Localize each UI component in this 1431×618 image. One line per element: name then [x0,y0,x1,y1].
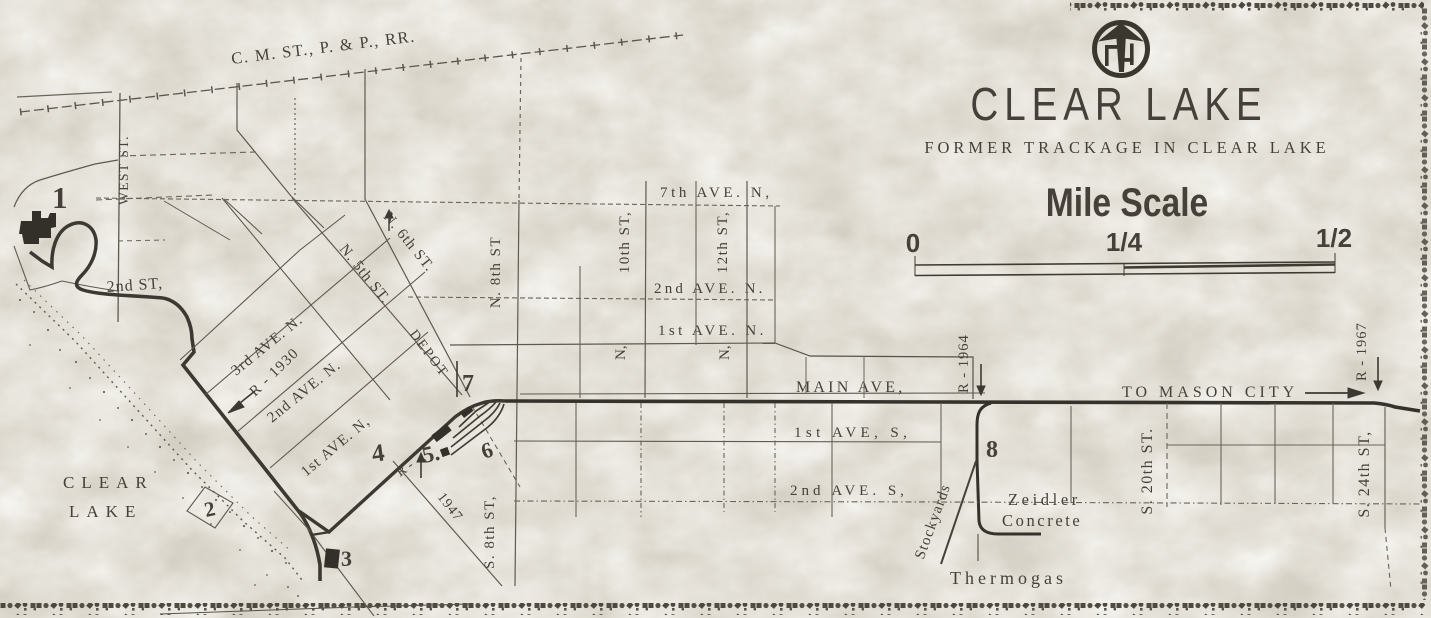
svg-text:CLEAR: CLEAR [63,473,154,492]
svg-text:N. 8th ST: N. 8th ST [488,236,504,308]
svg-text:1st AVE. N.: 1st AVE. N. [658,323,767,339]
svg-text:2nd AVE. N.: 2nd AVE. N. [654,281,766,297]
svg-text:0: 0 [906,228,920,258]
svg-text:R - 1964: R - 1964 [956,334,972,393]
svg-text:FORMER TRACKAGE IN CLEAR LAKE: FORMER TRACKAGE IN CLEAR LAKE [924,138,1329,157]
svg-text:S. 24th ST,: S. 24th ST, [1356,430,1373,517]
svg-text:3: 3 [341,546,352,571]
svg-text:12th ST,: 12th ST, [715,211,731,274]
svg-text:Zeidler: Zeidler [1008,490,1081,509]
svg-text:1: 1 [52,180,68,215]
svg-text:2nd AVE. S,: 2nd AVE. S, [790,483,908,499]
svg-text:1/2: 1/2 [1316,223,1352,253]
svg-text:Mile Scale: Mile Scale [1046,180,1208,224]
svg-text:TO MASON CITY: TO MASON CITY [1122,384,1298,401]
svg-text:N,: N, [717,345,733,360]
svg-text:S. 8th ST,: S. 8th ST, [482,495,498,569]
svg-text:7: 7 [462,371,474,397]
svg-text:CLEAR LAKE: CLEAR LAKE [970,79,1267,130]
svg-text:LAKE: LAKE [69,502,142,521]
svg-text:WEST ST.: WEST ST. [116,135,131,205]
svg-text:Thermogas: Thermogas [950,568,1067,588]
svg-text:8: 8 [986,437,998,463]
svg-text:7th AVE. N,: 7th AVE. N, [660,185,773,201]
svg-text:Concrete: Concrete [1002,511,1082,530]
svg-text:10th ST,: 10th ST, [617,211,633,274]
svg-text:1st AVE, S,: 1st AVE, S, [794,425,911,441]
svg-text:1/4: 1/4 [1106,227,1143,257]
svg-text:MAIN AVE,: MAIN AVE, [796,379,905,396]
svg-text:N,: N, [613,345,629,360]
svg-text:R - 1967: R - 1967 [1354,322,1370,381]
svg-text:S. 20th ST.: S. 20th ST. [1139,427,1156,514]
